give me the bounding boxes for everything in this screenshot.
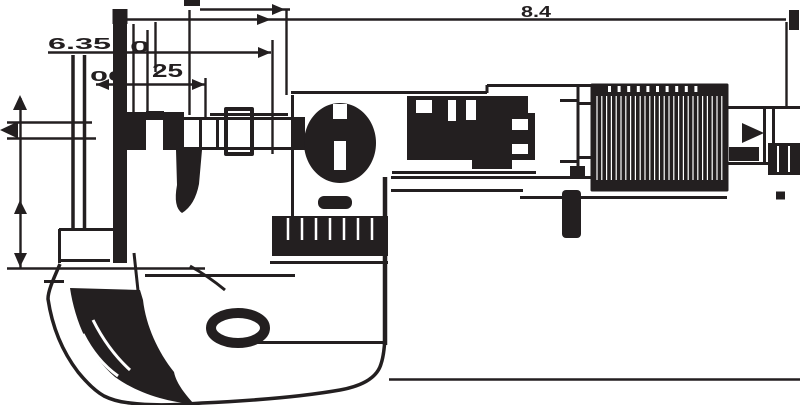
svg-text:25: 25 [152, 61, 183, 81]
svg-text:8.4: 8.4 [521, 4, 551, 21]
svg-text:6.35: 6.35 [48, 36, 111, 53]
svg-text:0: 0 [130, 39, 150, 56]
